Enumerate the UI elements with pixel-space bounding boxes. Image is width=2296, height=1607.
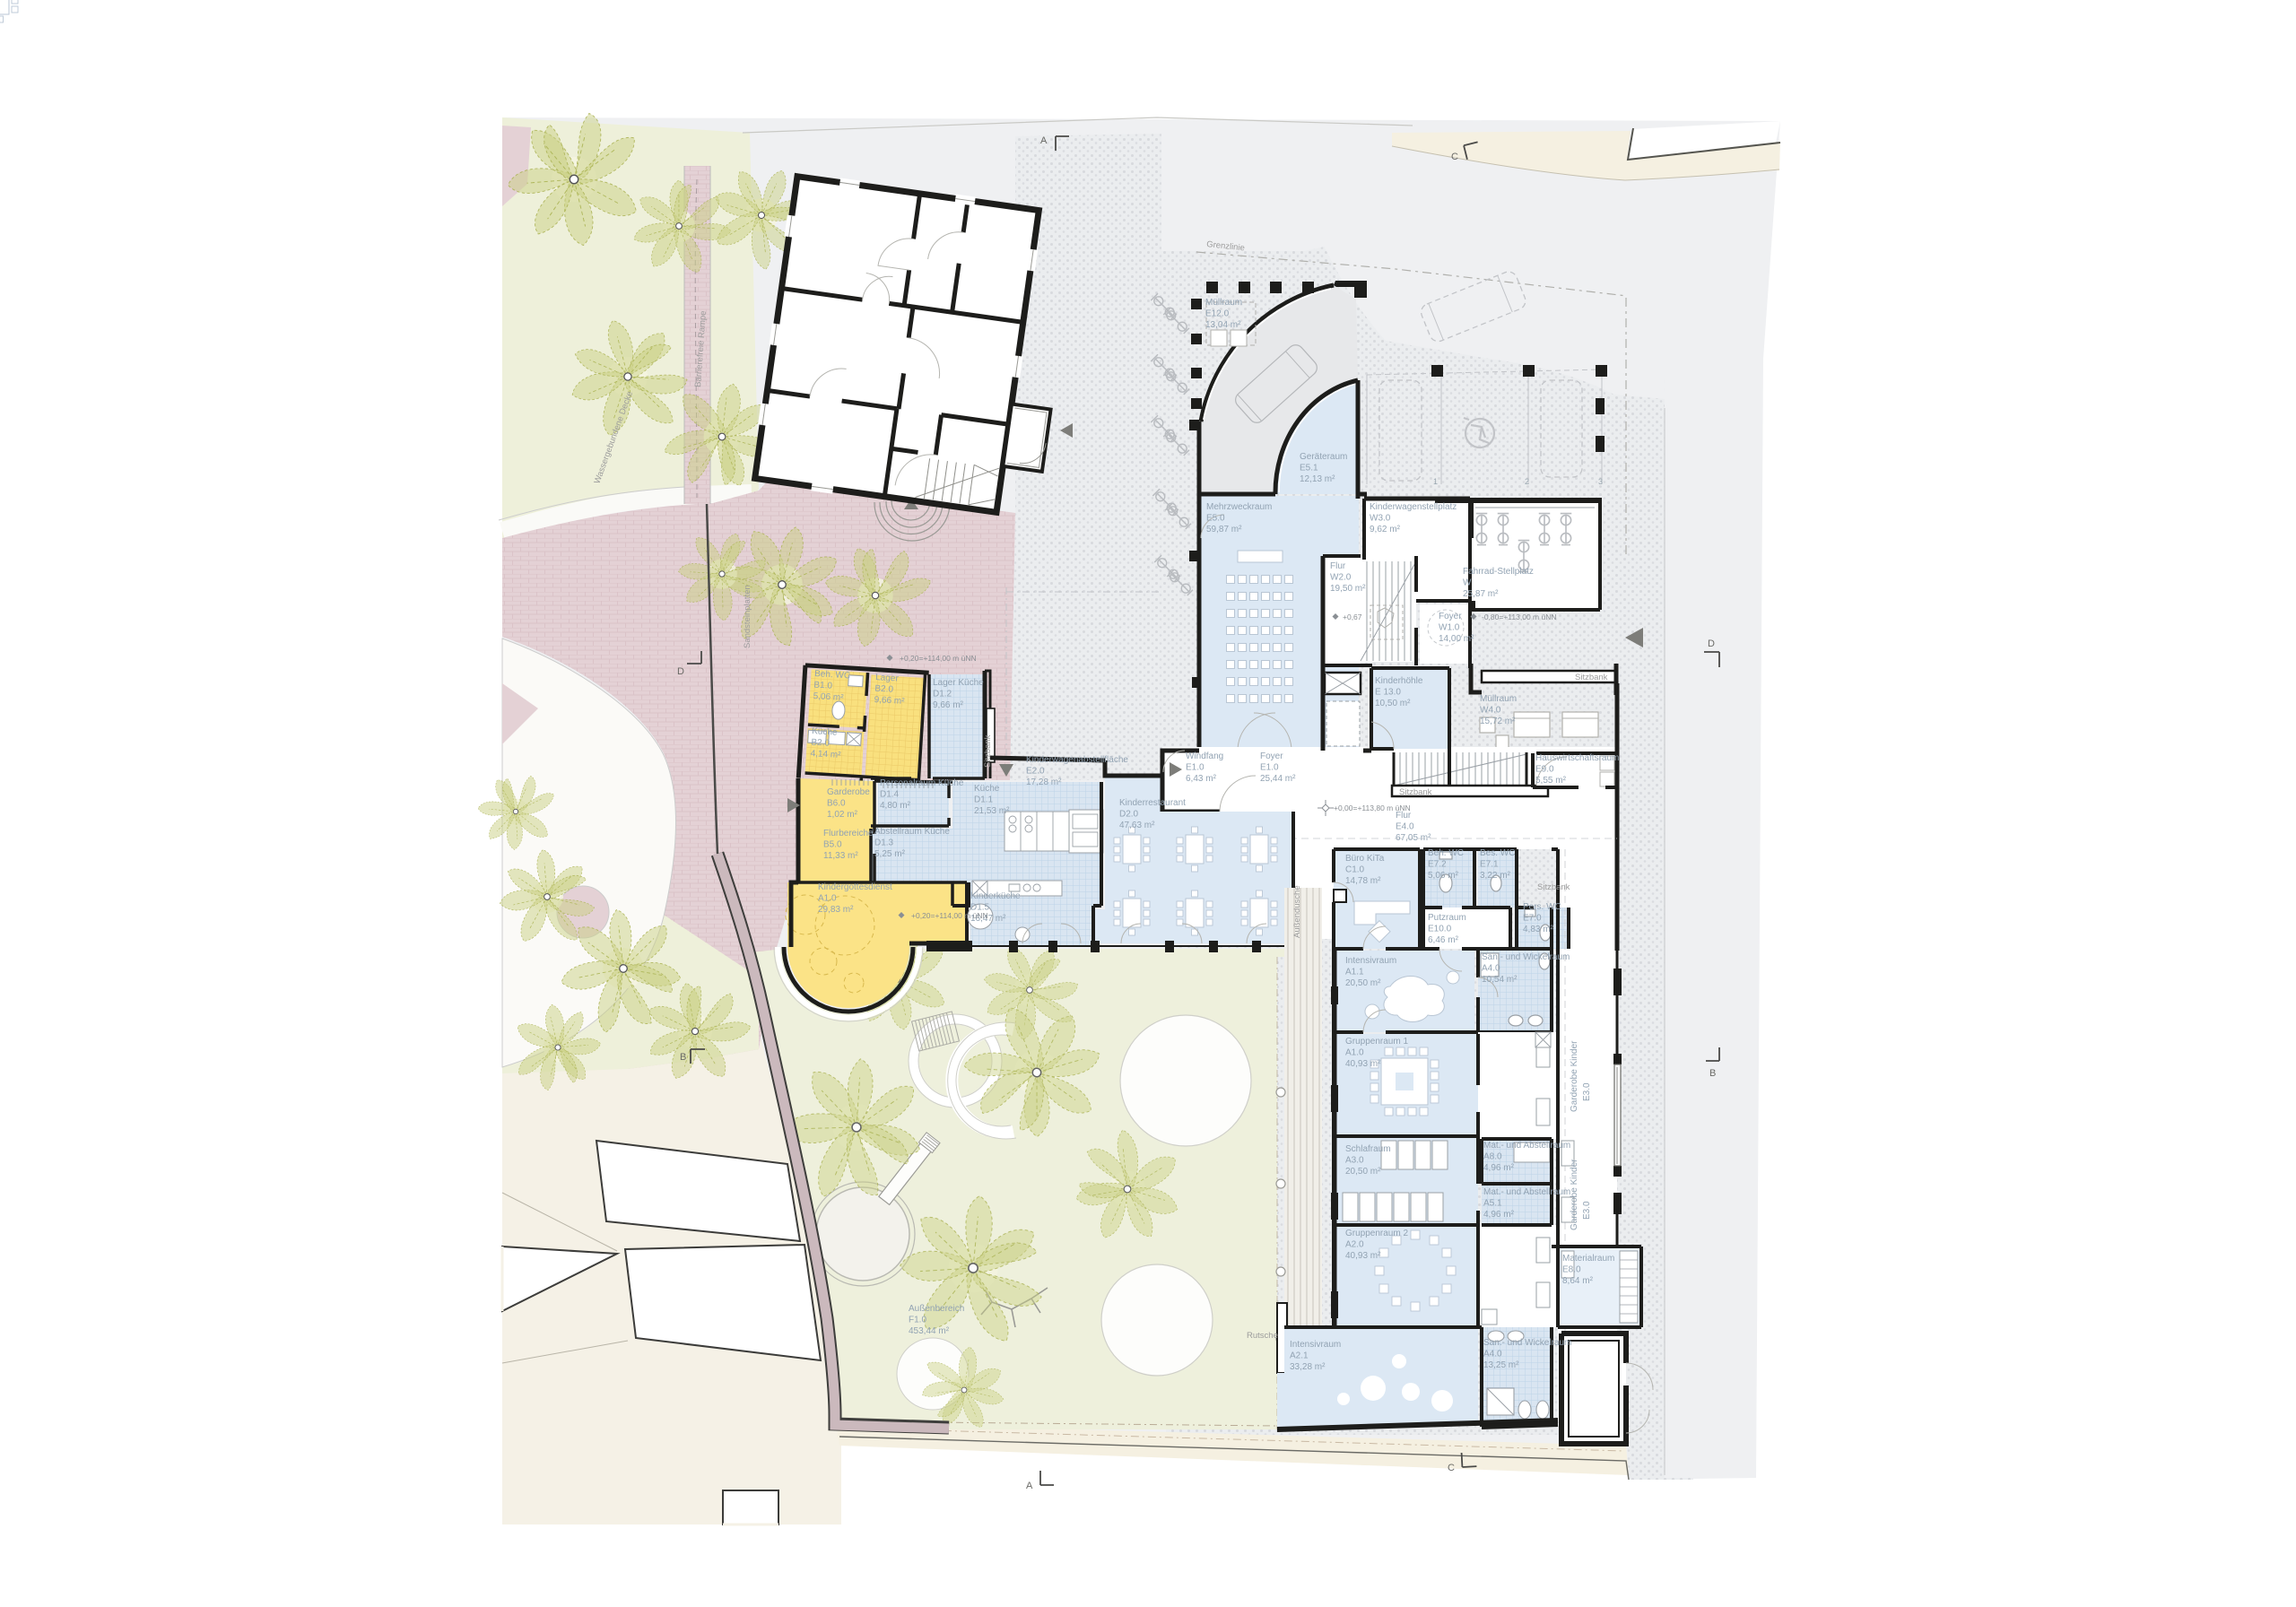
svg-text:3: 3 (1598, 477, 1603, 486)
svg-text:Sitzbank: Sitzbank (983, 734, 993, 768)
svg-text:+0,20=+114,00 m üNN: +0,20=+114,00 m üNN (911, 911, 988, 920)
svg-text:E3.0: E3.0 (1582, 1201, 1592, 1220)
svg-text:Außendusche: Außendusche (1292, 885, 1302, 938)
svg-text:Garderobe Kinder: Garderobe Kinder (1570, 1040, 1579, 1112)
svg-text:B: B (680, 1052, 686, 1063)
svg-text:E3.0: E3.0 (1582, 1082, 1592, 1101)
svg-text:Sandsteinplatten: Sandsteinplatten (743, 585, 752, 648)
svg-text:+0,20=+114,00 m üNN: +0,20=+114,00 m üNN (900, 654, 977, 663)
svg-text:B: B (1709, 1068, 1716, 1079)
svg-text:C: C (1448, 1463, 1455, 1473)
svg-text:2: 2 (1525, 477, 1529, 486)
svg-text:C: C (1451, 152, 1458, 162)
svg-text:Sitzbank: Sitzbank (1537, 882, 1570, 892)
svg-text:Garderobe Kinder: Garderobe Kinder (1570, 1159, 1579, 1230)
svg-text:A: A (1026, 1481, 1033, 1491)
svg-text:D: D (677, 666, 684, 677)
svg-text:-0,80=+113,00 m üNN: -0,80=+113,00 m üNN (1482, 612, 1556, 621)
svg-text:A: A (1040, 135, 1048, 146)
svg-text:D: D (1708, 638, 1715, 649)
svg-text:+0,00=+113,80 m üNN: +0,00=+113,80 m üNN (1334, 803, 1411, 812)
svg-text:Sitzbank: Sitzbank (1575, 673, 1608, 682)
svg-text:1: 1 (1433, 477, 1438, 486)
svg-text:Rutsche: Rutsche (1247, 1331, 1278, 1341)
svg-text:+0,67: +0,67 (1343, 612, 1362, 621)
svg-text:Sitzbank: Sitzbank (1399, 787, 1432, 797)
